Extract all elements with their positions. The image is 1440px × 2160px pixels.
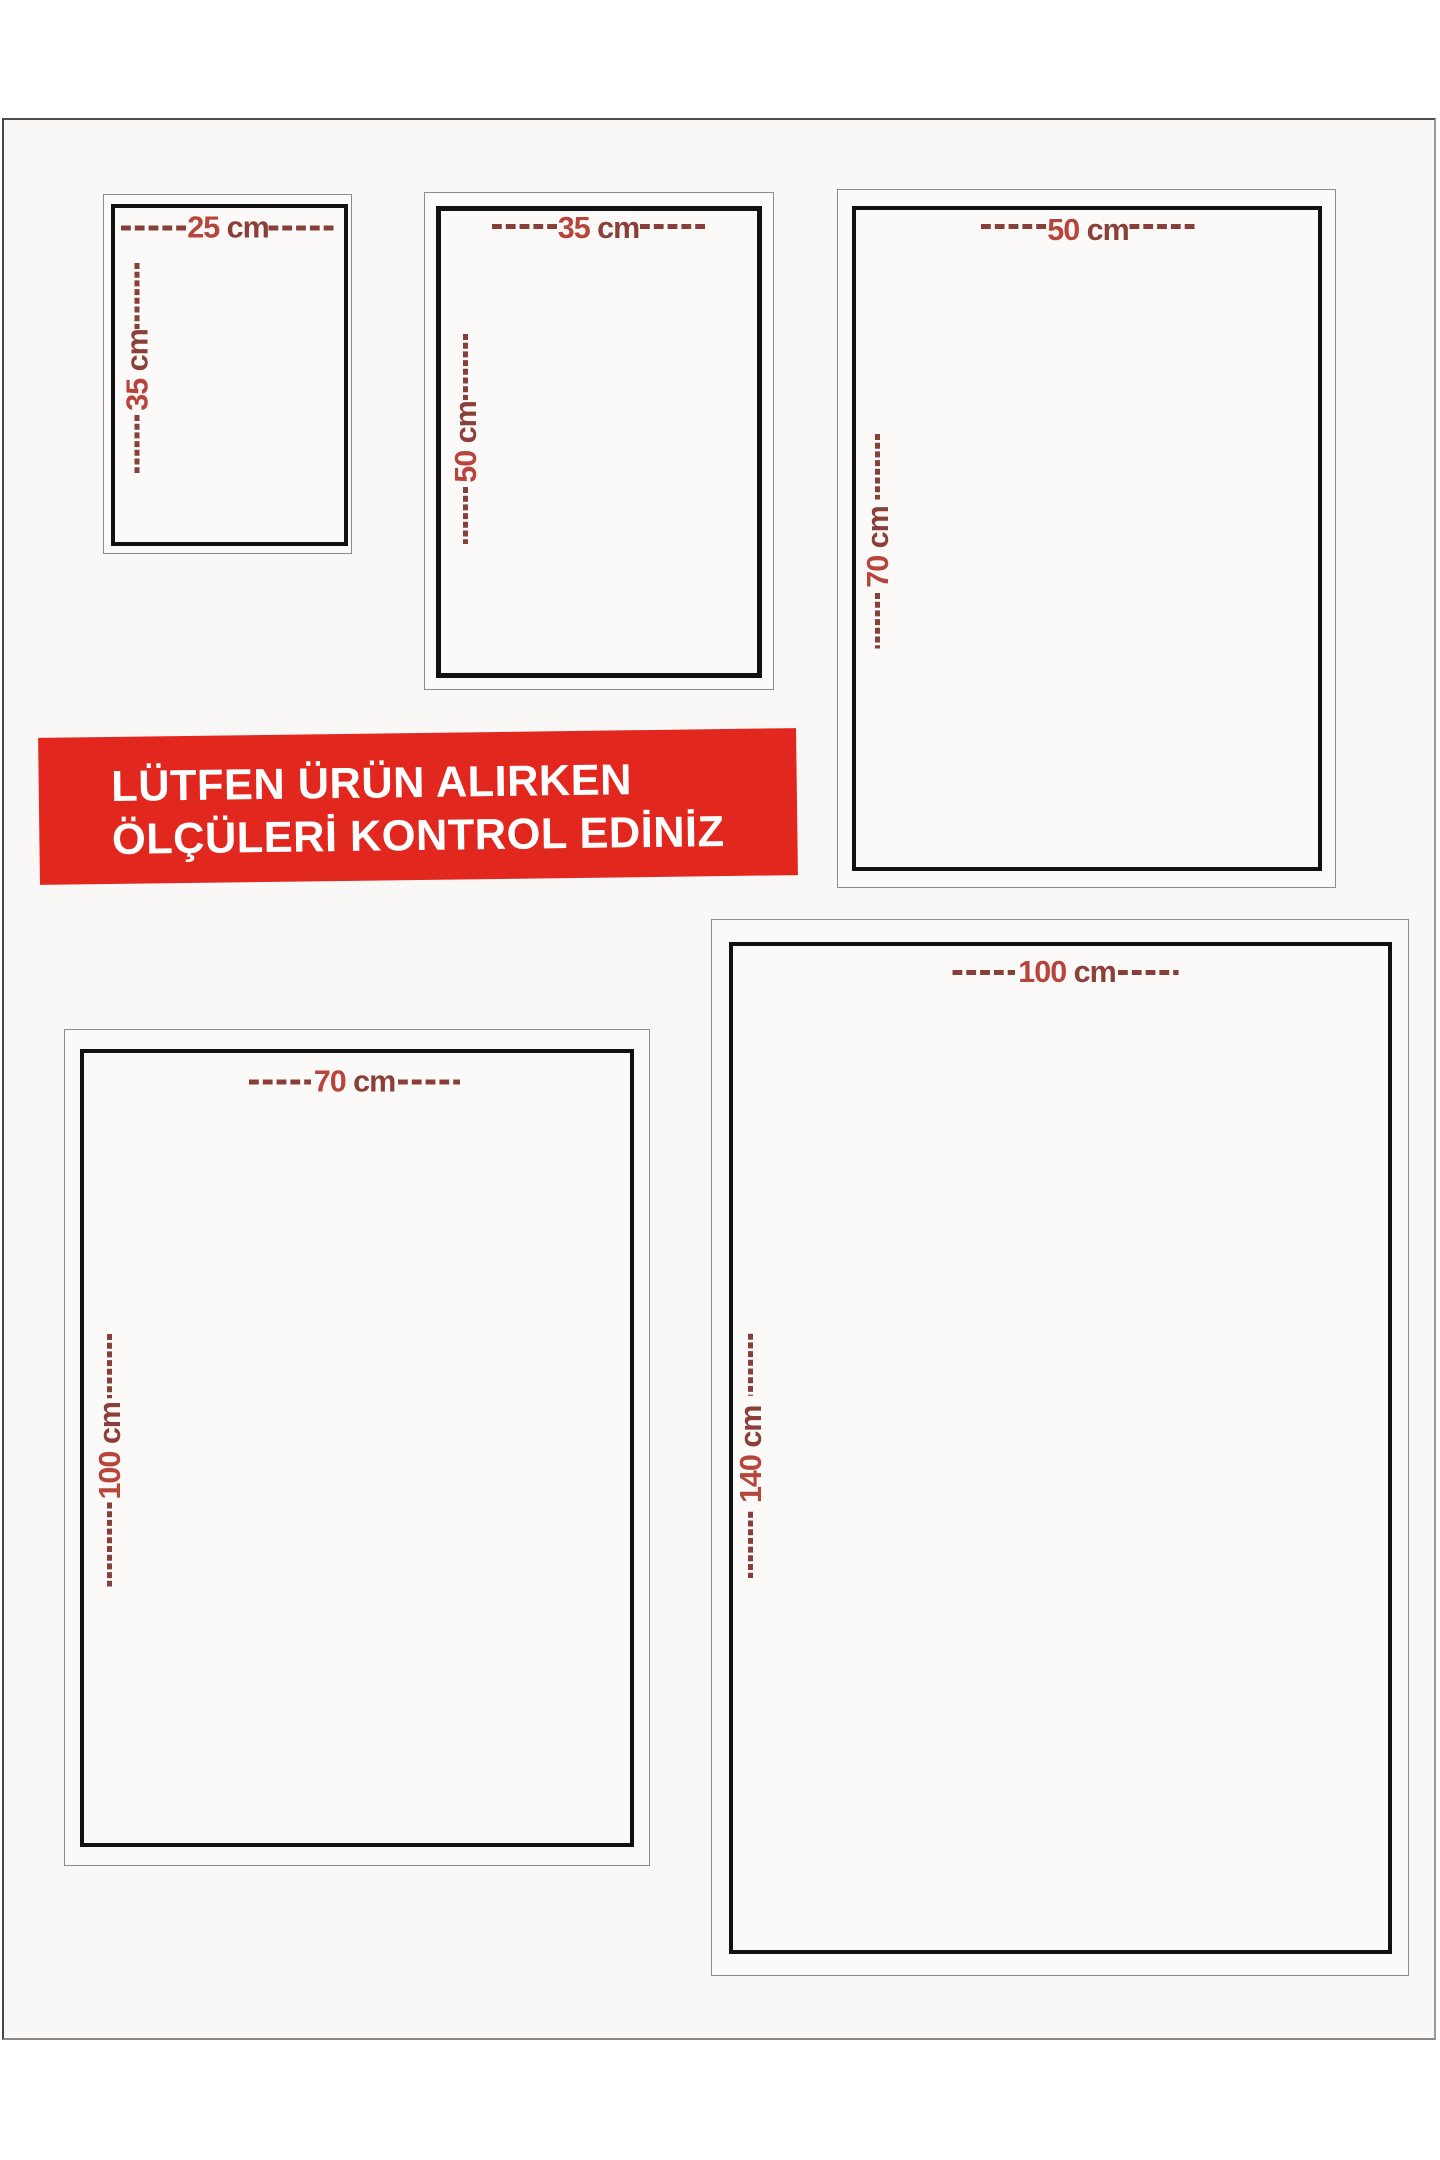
- svg-text:100 cm: 100 cm: [93, 1402, 127, 1499]
- svg-text:50 cm: 50 cm: [1047, 213, 1129, 247]
- svg-text:70 cm: 70 cm: [861, 506, 895, 588]
- svg-text:25 cm: 25 cm: [187, 211, 269, 245]
- svg-text:140 cm: 140 cm: [734, 1406, 768, 1503]
- svg-text:70 cm: 70 cm: [314, 1065, 396, 1099]
- svg-text:100 cm: 100 cm: [1018, 955, 1115, 989]
- svg-text:35 cm: 35 cm: [558, 211, 640, 245]
- svg-text:35 cm: 35 cm: [121, 329, 155, 411]
- svg-text:50 cm: 50 cm: [449, 401, 483, 483]
